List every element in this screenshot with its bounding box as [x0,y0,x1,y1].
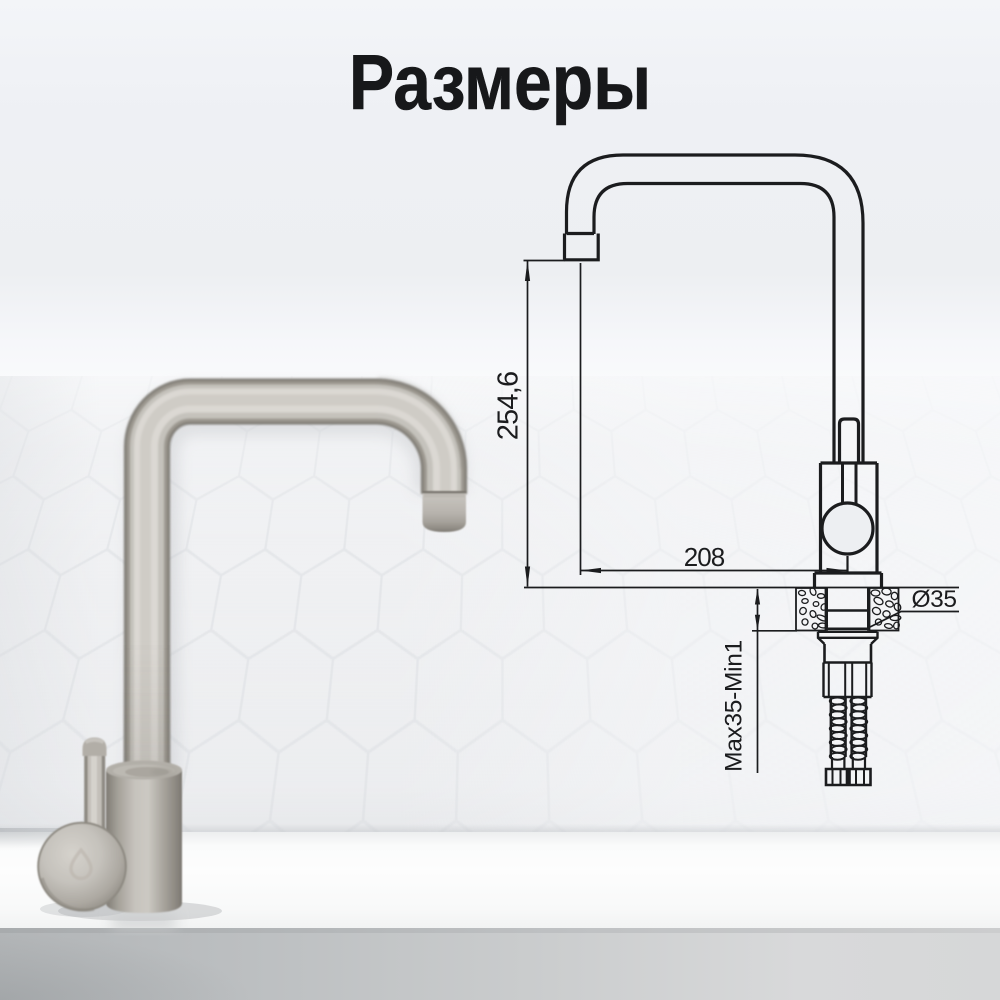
svg-text:Max35-Min1: Max35-Min1 [720,640,747,772]
svg-text:254,6: 254,6 [493,372,525,441]
svg-text:208: 208 [684,542,725,572]
svg-text:Ø35: Ø35 [911,586,956,613]
